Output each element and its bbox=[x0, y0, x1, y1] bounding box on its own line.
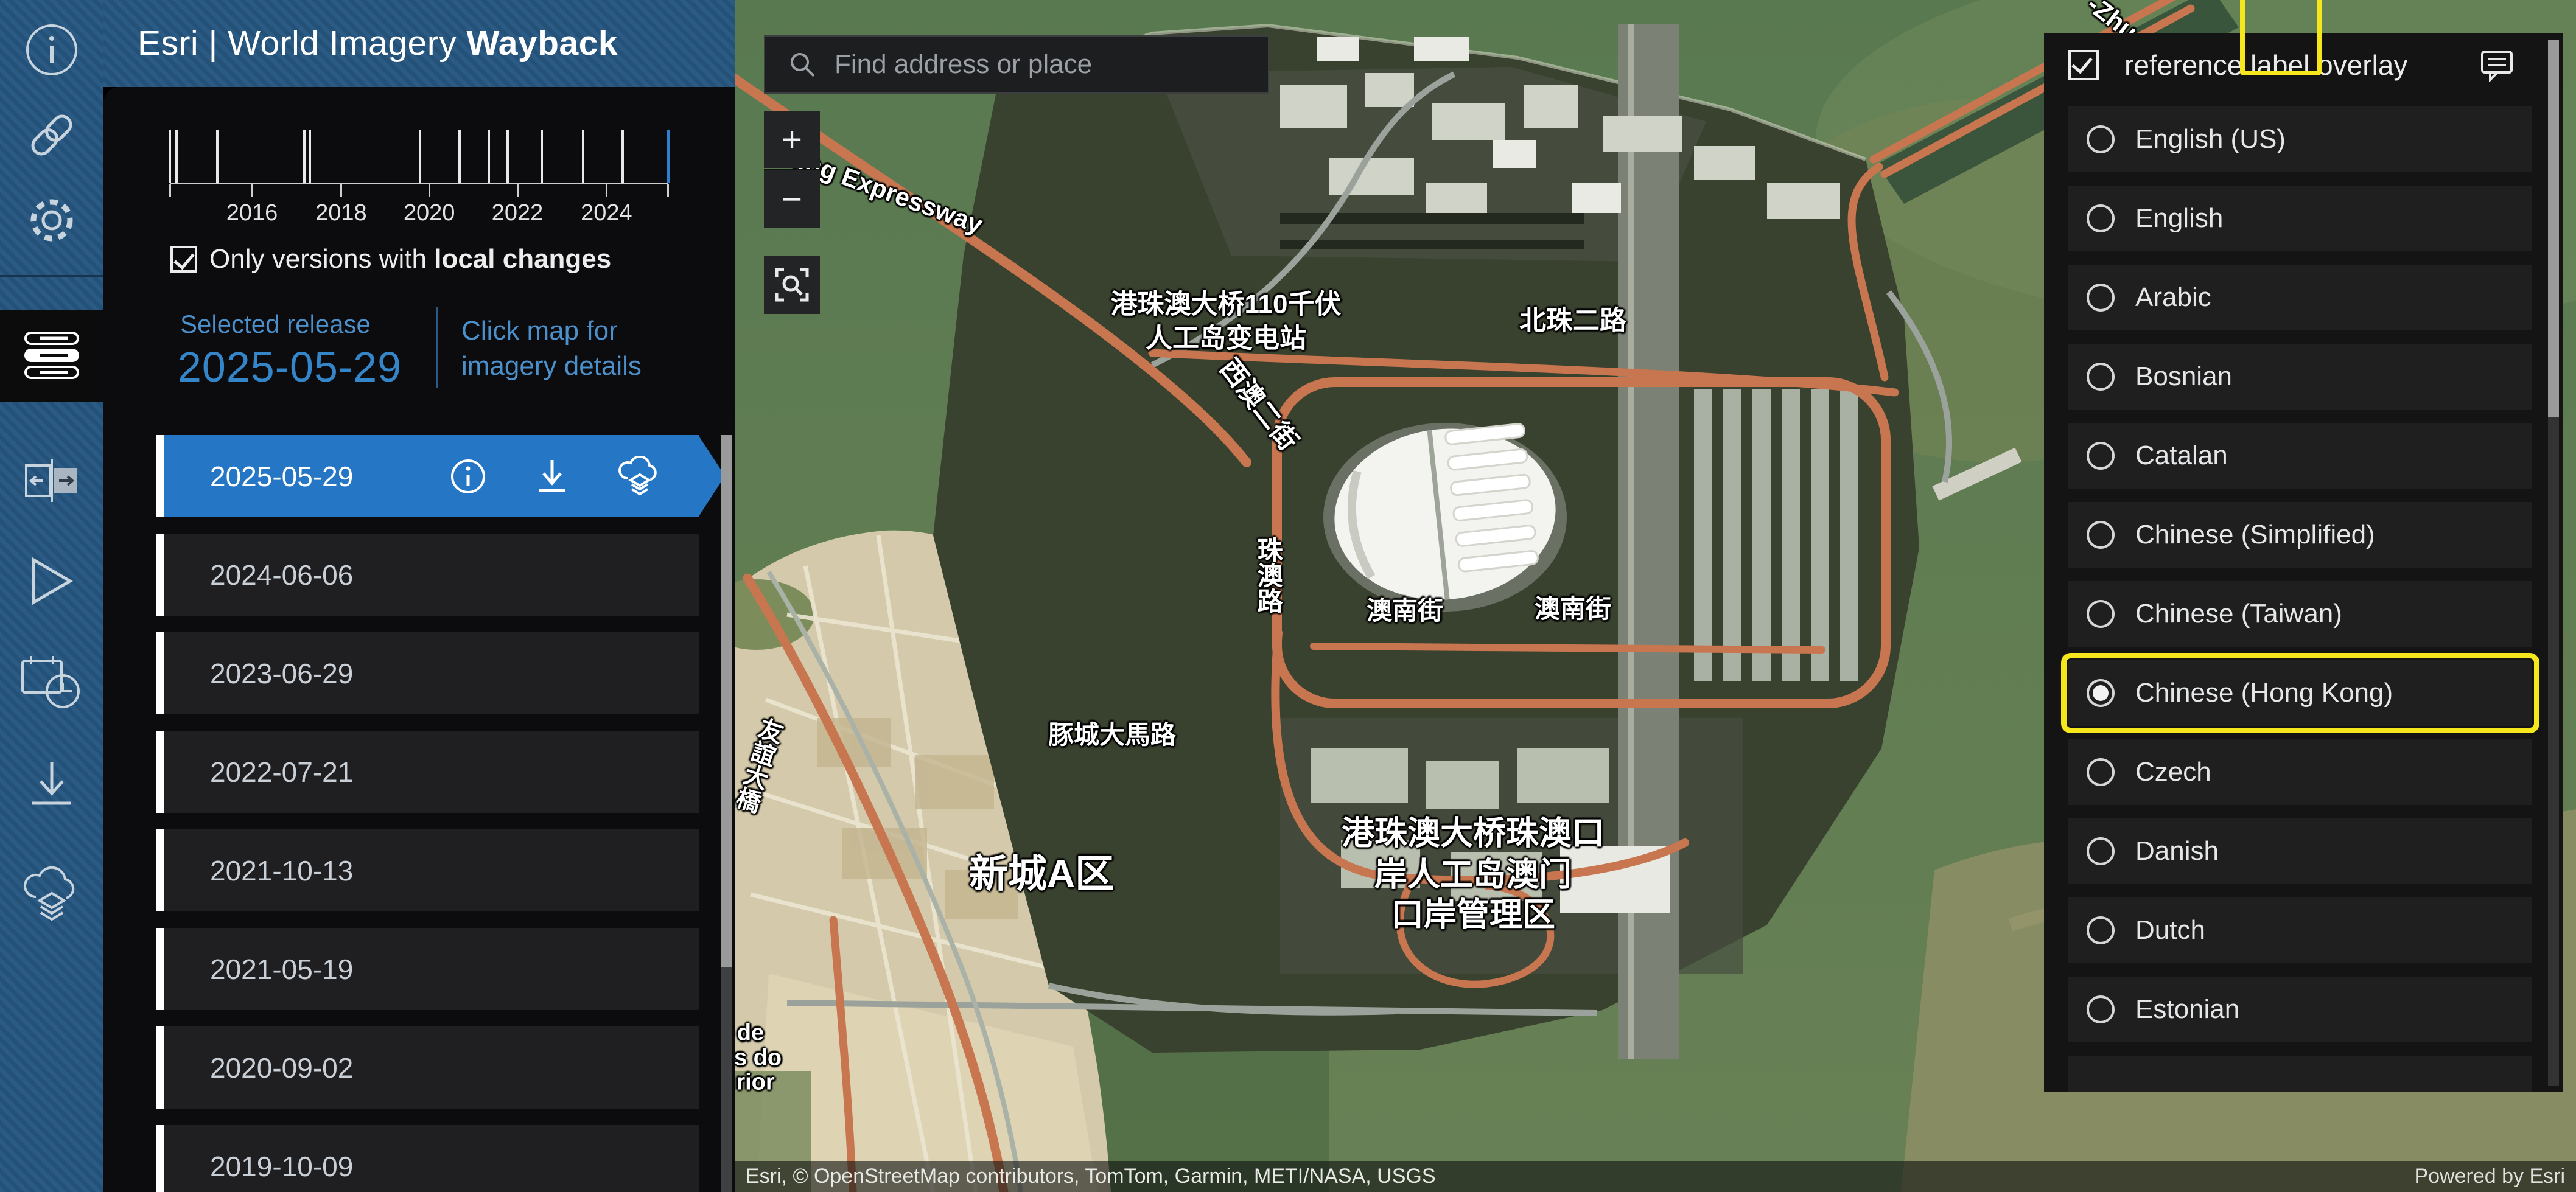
sidebar-item-timeline-mode[interactable] bbox=[0, 638, 103, 725]
release-row-marker bbox=[156, 829, 164, 911]
map-label-port-line1: 港珠澳大桥珠澳口 bbox=[1342, 813, 1605, 854]
timeline-year-label: 2022 bbox=[492, 200, 544, 226]
attribution-sources: Esri, © OpenStreetMap contributors, TomT… bbox=[746, 1165, 1436, 1188]
language-option[interactable]: Chinese (Taiwan) bbox=[2068, 581, 2532, 647]
link-icon bbox=[23, 106, 81, 164]
language-option[interactable]: Dutch bbox=[2068, 897, 2532, 963]
language-option[interactable]: English (US) bbox=[2068, 106, 2532, 172]
sidebar-item-swipe-compare[interactable] bbox=[0, 437, 103, 525]
radio-selected-icon[interactable] bbox=[2087, 679, 2115, 707]
timeline-year-tick bbox=[251, 184, 253, 197]
timeline-version-tick[interactable] bbox=[169, 130, 171, 183]
timeline-axis-end-tick bbox=[667, 184, 669, 197]
timeline-year-label: 2018 bbox=[315, 200, 367, 226]
timeline-year-label: 2016 bbox=[226, 200, 278, 226]
sidebar-item-share-link[interactable] bbox=[0, 91, 103, 179]
app-title-bold: Wayback bbox=[467, 24, 618, 63]
release-list: 2025-05-29 20 bbox=[156, 435, 699, 1192]
release-row-marker bbox=[156, 632, 164, 714]
release-row[interactable]: 2019-10-09 bbox=[156, 1125, 699, 1192]
release-row[interactable]: 2020-09-02 bbox=[156, 1026, 699, 1109]
release-row-marker bbox=[156, 435, 164, 517]
app-header: Esri | World Imagery Wayback bbox=[103, 0, 735, 87]
release-date: 2021-10-13 bbox=[210, 854, 353, 887]
release-row[interactable]: 2024-06-06 bbox=[156, 534, 699, 616]
local-changes-checkbox[interactable] bbox=[170, 246, 197, 273]
radio-icon[interactable] bbox=[2087, 837, 2115, 865]
map-label-substation-line2: 人工岛变电站 bbox=[1146, 322, 1306, 355]
release-date: 2019-10-09 bbox=[210, 1150, 353, 1183]
release-row[interactable]: 2021-05-19 bbox=[156, 928, 699, 1010]
language-option[interactable]: Chinese (Simplified) bbox=[2068, 502, 2532, 568]
sidebar-divider bbox=[0, 275, 103, 277]
language-option[interactable]: Bosnian bbox=[2068, 344, 2532, 410]
selected-release-heading: Selected release bbox=[180, 310, 371, 339]
map-hint-line1: Click map for bbox=[461, 316, 618, 346]
play-icon bbox=[27, 555, 76, 607]
release-row[interactable]: 2022-07-21 bbox=[156, 731, 699, 813]
comment-button[interactable] bbox=[2477, 46, 2516, 83]
release-list-scrollbar[interactable] bbox=[721, 435, 732, 1192]
timeline-version-tick[interactable] bbox=[309, 130, 311, 183]
timeline-version-tick[interactable] bbox=[488, 130, 490, 183]
timeline-version-tick[interactable] bbox=[582, 130, 584, 183]
radio-icon[interactable] bbox=[2087, 758, 2115, 786]
timeline-version-tick[interactable] bbox=[175, 130, 178, 183]
sidebar-item-version-list-active[interactable] bbox=[0, 310, 103, 402]
zoom-out-button[interactable]: − bbox=[764, 169, 820, 228]
timeline-version-tick[interactable] bbox=[621, 130, 624, 183]
release-row[interactable]: 2021-10-13 bbox=[156, 829, 699, 911]
release-row-selected[interactable]: 2025-05-29 bbox=[156, 435, 699, 517]
release-list-scrollbar-thumb[interactable] bbox=[721, 435, 732, 967]
sidebar-item-about[interactable] bbox=[0, 6, 103, 94]
map-label-tuncheng-avenue: 豚城大馬路 bbox=[1048, 719, 1176, 751]
map-label-port-line3: 口岸管理区 bbox=[1391, 894, 1555, 936]
release-row-marker bbox=[156, 1125, 164, 1192]
timeline-year-tick bbox=[340, 184, 342, 197]
release-row-marker bbox=[156, 534, 164, 616]
timeline-year-label: 2020 bbox=[404, 200, 455, 226]
release-cloud-layers-icon[interactable] bbox=[617, 456, 662, 497]
release-info-icon[interactable] bbox=[449, 458, 487, 495]
map-label-aonan-street-right: 澳南街 bbox=[1535, 593, 1611, 626]
radio-icon[interactable] bbox=[2087, 600, 2115, 628]
info-icon bbox=[24, 22, 80, 78]
app-title: Esri | World Imagery Wayback bbox=[138, 23, 618, 63]
search-icon bbox=[788, 51, 816, 78]
search-bar[interactable] bbox=[764, 35, 1269, 94]
sidebar-item-animate[interactable] bbox=[0, 537, 103, 625]
map-label-new-town-zone-a: 新城A区 bbox=[969, 849, 1114, 898]
local-changes-filter[interactable]: Only versions with local changes bbox=[170, 244, 611, 274]
version-timeline[interactable]: 2016 2018 2020 2022 2024 bbox=[170, 130, 668, 233]
timeline-year-tick bbox=[517, 184, 519, 197]
language-option[interactable]: Estonian bbox=[2068, 977, 2532, 1042]
attribution-bar: Esri, © OpenStreetMap contributors, TomT… bbox=[732, 1161, 2576, 1192]
cloud-layers-icon bbox=[21, 866, 82, 922]
reference-label-checkbox[interactable] bbox=[2068, 50, 2099, 80]
release-date: 2021-05-19 bbox=[210, 953, 353, 986]
radio-icon[interactable] bbox=[2087, 521, 2115, 549]
language-list: English (US) English Arabic Bosnian Cata… bbox=[2068, 106, 2532, 1092]
release-download-icon[interactable] bbox=[534, 458, 570, 495]
sidebar bbox=[0, 0, 103, 1192]
radio-icon[interactable] bbox=[2087, 363, 2115, 391]
zoom-in-button[interactable]: + bbox=[764, 111, 820, 168]
language-list-scrollbar-thumb[interactable] bbox=[2548, 40, 2559, 417]
language-option[interactable]: Arabic bbox=[2068, 265, 2532, 330]
release-date: 2023-06-29 bbox=[210, 657, 353, 690]
timeline-version-tick[interactable] bbox=[541, 130, 543, 183]
map-label-substation-line1: 港珠澳大桥110千伏 bbox=[1111, 288, 1342, 321]
radio-icon[interactable] bbox=[2087, 916, 2115, 944]
release-row[interactable]: 2023-06-29 bbox=[156, 632, 699, 714]
release-date: 2024-06-06 bbox=[210, 559, 353, 591]
map-label-beizhu-er-road: 北珠二路 bbox=[1519, 304, 1626, 338]
map-hint-line2: imagery details bbox=[461, 351, 642, 382]
highlight-box-comment bbox=[2240, 0, 2322, 75]
map-label-fragment-3: rior bbox=[736, 1068, 774, 1097]
radio-icon[interactable] bbox=[2087, 442, 2115, 470]
version-panel: 2016 2018 2020 2022 2024 Only versions w… bbox=[103, 87, 735, 1192]
timeline-version-tick[interactable] bbox=[506, 130, 509, 183]
swipe-compare-icon bbox=[23, 458, 81, 503]
sidebar-item-download[interactable] bbox=[0, 741, 103, 829]
app-title-regular: Esri | World Imagery bbox=[138, 24, 467, 63]
version-list-icon bbox=[23, 330, 80, 382]
calendar-clock-icon bbox=[20, 654, 83, 709]
sidebar-item-export-cache[interactable] bbox=[0, 851, 103, 938]
radio-icon[interactable] bbox=[2087, 284, 2115, 312]
zoom-selection-icon bbox=[774, 267, 810, 302]
release-date: 2022-07-21 bbox=[210, 756, 353, 789]
timeline-version-tick-selected[interactable] bbox=[667, 130, 670, 183]
timeline-version-tick[interactable] bbox=[303, 130, 306, 183]
powered-by-esri: Powered by Esri bbox=[2414, 1165, 2565, 1188]
radio-icon[interactable] bbox=[2087, 995, 2115, 1023]
timeline-axis-start-tick bbox=[169, 184, 171, 197]
zoom-selection-button[interactable] bbox=[764, 256, 820, 314]
timeline-version-tick[interactable] bbox=[216, 130, 219, 183]
radio-icon[interactable] bbox=[2087, 204, 2115, 232]
timeline-year-label: 2024 bbox=[581, 200, 632, 226]
download-icon bbox=[26, 758, 77, 812]
language-option[interactable]: English bbox=[2068, 186, 2532, 251]
map-label-zhuao-road: 珠澳路 bbox=[1252, 537, 1284, 613]
reference-label-toggle[interactable]: reference label overlay bbox=[2068, 49, 2407, 82]
map-label-aonan-street-left: 澳南街 bbox=[1367, 595, 1443, 627]
timeline-year-tick bbox=[606, 184, 607, 197]
timeline-axis bbox=[170, 183, 668, 184]
gear-icon bbox=[23, 191, 81, 249]
release-row-marker bbox=[156, 1026, 164, 1109]
language-option[interactable]: Czech bbox=[2068, 739, 2532, 805]
comment-icon bbox=[2479, 47, 2515, 82]
language-option-partial[interactable] bbox=[2068, 1056, 2532, 1092]
language-option-selected[interactable]: Chinese (Hong Kong) bbox=[2068, 660, 2532, 726]
search-input[interactable] bbox=[833, 49, 1225, 80]
reference-label-panel: reference label overlay English (US) Eng… bbox=[2044, 33, 2563, 1092]
language-list-scrollbar[interactable] bbox=[2548, 40, 2559, 1086]
timeline-version-tick[interactable] bbox=[419, 130, 421, 183]
language-option[interactable]: Danish bbox=[2068, 818, 2532, 884]
map-label-port-line2: 岸人工岛澳门 bbox=[1374, 854, 1572, 896]
release-row-marker bbox=[156, 928, 164, 1010]
release-date: 2025-05-29 bbox=[210, 460, 353, 493]
language-option[interactable]: Catalan bbox=[2068, 423, 2532, 489]
timeline-year-tick bbox=[429, 184, 430, 197]
radio-icon[interactable] bbox=[2087, 125, 2115, 153]
release-date: 2020-09-02 bbox=[210, 1051, 353, 1084]
sidebar-item-settings[interactable] bbox=[0, 176, 103, 264]
release-row-marker bbox=[156, 731, 164, 813]
selected-release-date: 2025-05-29 bbox=[178, 343, 402, 391]
local-changes-label: Only versions with local changes bbox=[209, 244, 611, 274]
timeline-version-tick[interactable] bbox=[458, 130, 461, 183]
selection-divider bbox=[436, 307, 438, 388]
